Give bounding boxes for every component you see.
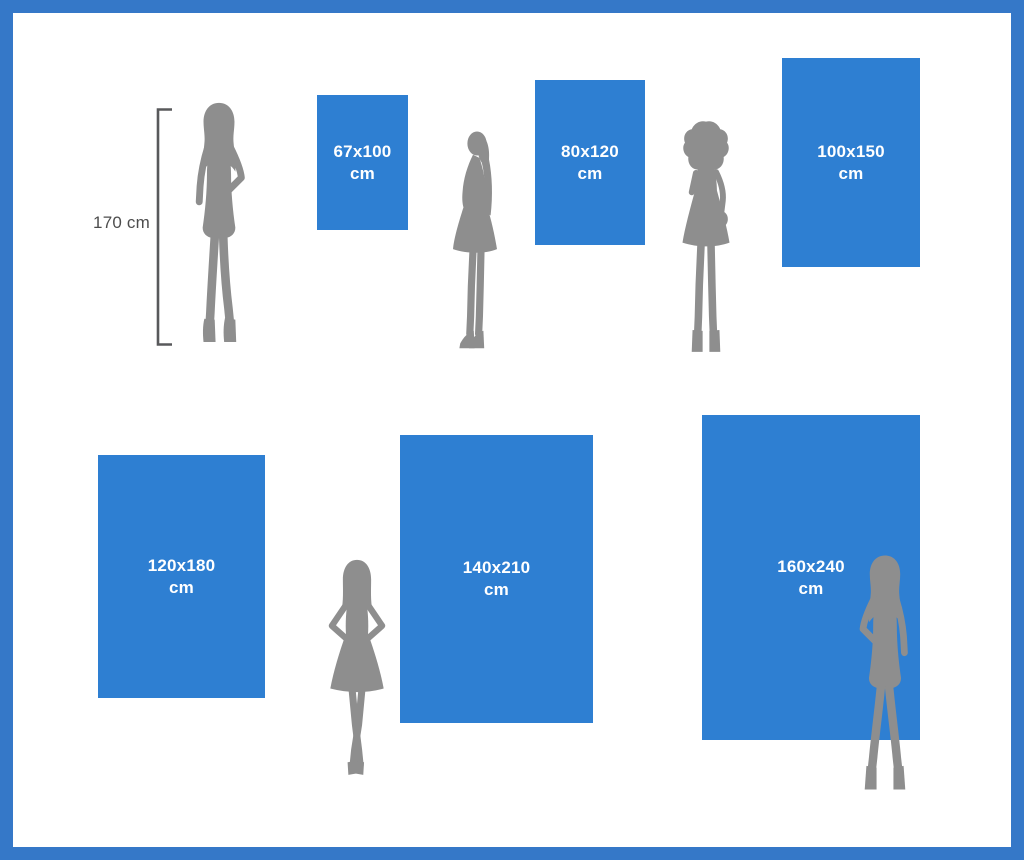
poster-size-comparison-diagram: 170 cm 67x100 cm 80x120 cm: [0, 0, 1024, 860]
poster-unit-label: cm: [484, 579, 509, 601]
poster-size-label: 100x150: [817, 141, 885, 163]
woman-silhouette-hands-on-hips-icon: [306, 558, 408, 794]
poster-size-label: 67x100: [334, 141, 392, 163]
poster-unit-label: cm: [169, 577, 194, 599]
poster-100x150: 100x150 cm: [782, 58, 920, 267]
poster-67x100: 67x100 cm: [317, 95, 408, 230]
measurement-bracket-icon: [155, 108, 175, 346]
poster-size-label: 160x240: [777, 556, 845, 578]
poster-size-label: 80x120: [561, 141, 619, 163]
poster-unit-label: cm: [799, 578, 824, 600]
poster-size-label: 120x180: [148, 555, 216, 577]
woman-silhouette-profile-icon: [437, 125, 513, 370]
poster-size-label: 140x210: [463, 557, 531, 579]
woman-silhouette-hand-on-hip-icon: [176, 100, 262, 350]
poster-unit-label: cm: [350, 163, 375, 185]
woman-silhouette-curly-hair-icon: [664, 120, 748, 372]
poster-120x180: 120x180 cm: [98, 455, 265, 698]
woman-silhouette-legs-apart-icon: [840, 553, 930, 798]
poster-unit-label: cm: [578, 163, 603, 185]
poster-140x210: 140x210 cm: [400, 435, 593, 723]
poster-unit-label: cm: [839, 163, 864, 185]
reference-height-label: 170 cm: [86, 213, 150, 233]
poster-80x120: 80x120 cm: [535, 80, 645, 245]
